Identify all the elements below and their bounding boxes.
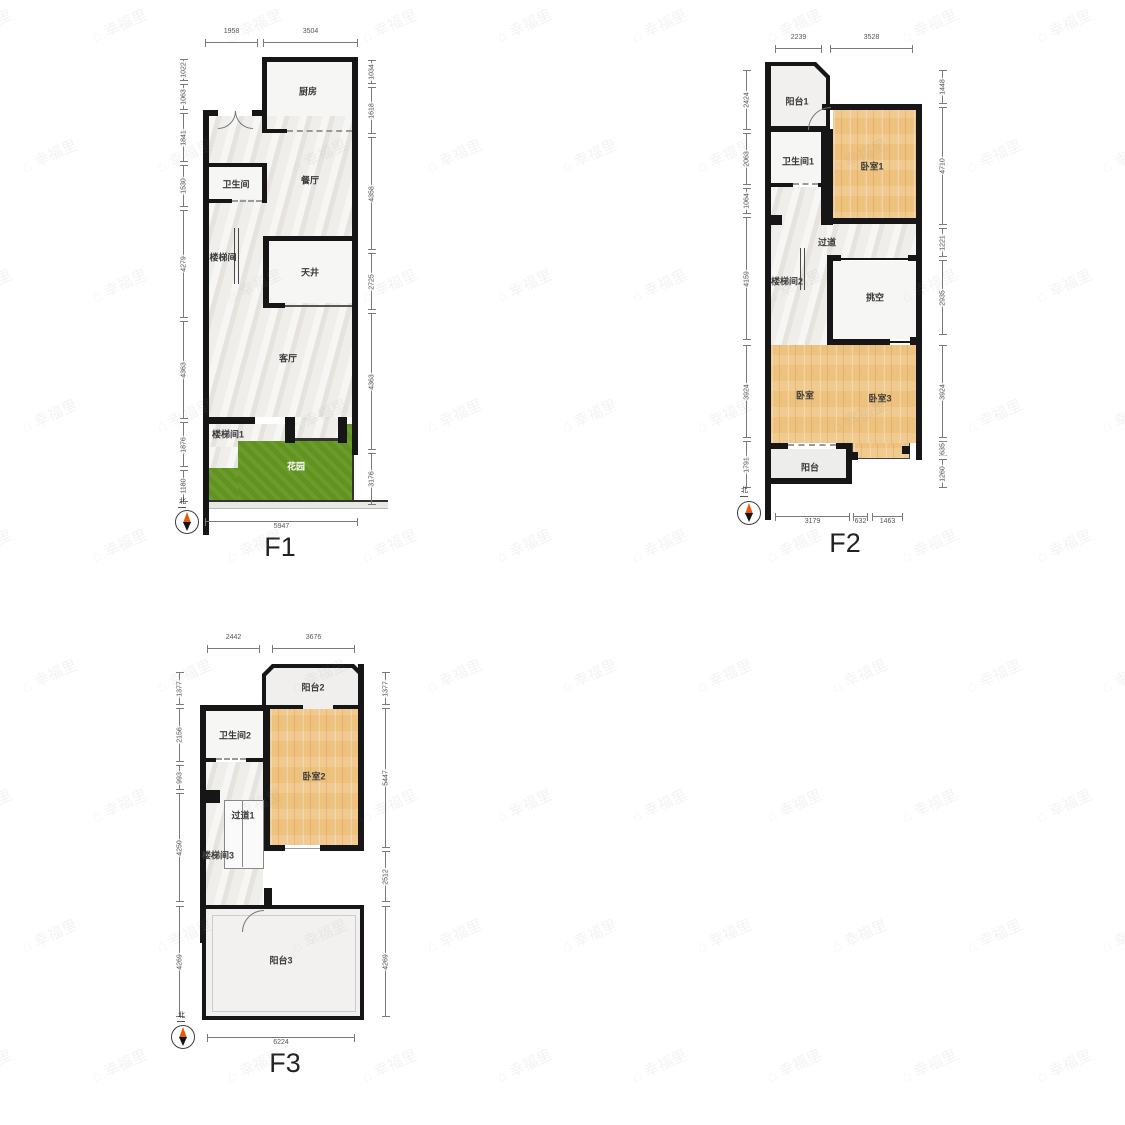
north-tick <box>177 1021 185 1022</box>
void-top-edge <box>833 258 916 260</box>
floor-plan-f3: 阳台2 卫生间2 卧室2 过道1 楼梯间3 阳台3 2442 3676 6224… <box>170 630 400 1095</box>
floorplan-page: { "watermark": "幸福里", "compass": { "nort… <box>0 0 1125 1125</box>
garden-edge-line <box>203 508 388 509</box>
f1-room-label-bath: 卫生间 <box>222 178 249 191</box>
watermark: ⌂ 幸福里 <box>1098 134 1125 177</box>
f2-dim-right-4: 3924 <box>937 345 949 438</box>
watermark: ⌂ 幸福里 <box>88 784 150 827</box>
watermark: ⌂ 幸福里 <box>0 784 15 827</box>
f2-dim-right-2: 1221 <box>937 228 949 257</box>
f2-room-label-void: 挑空 <box>866 291 884 304</box>
f3-balcony3-door-gap <box>206 909 240 913</box>
wall-stub <box>822 215 833 225</box>
wall <box>200 705 270 711</box>
north-label: 北 <box>741 485 748 495</box>
f2-room-label-bath1: 卫生间1 <box>782 155 814 168</box>
f1-dim-left-5: 4363 <box>178 321 190 419</box>
f2-dim-right-6: 1260 <box>937 459 949 488</box>
f1-room-label-dining: 餐厅 <box>301 174 319 187</box>
wall <box>263 236 269 308</box>
wall <box>203 110 209 535</box>
f3-dim-left-4: 4269 <box>174 906 186 1017</box>
f3-dim-left-2: 993 <box>174 765 186 790</box>
f2-dim-right-3: 2935 <box>937 260 949 335</box>
wall <box>822 104 922 110</box>
wall <box>352 57 358 455</box>
f1-room-label-stair1: 楼梯间1 <box>212 428 244 441</box>
watermark: ⌂ 幸福里 <box>963 654 1025 697</box>
wall-stub <box>910 337 916 345</box>
f2-dim-top-1: 3528 <box>830 43 913 55</box>
wall-stub <box>850 452 858 460</box>
north-tick <box>740 496 748 497</box>
watermark: ⌂ 幸福里 <box>0 524 15 567</box>
porch-step-line <box>295 438 338 441</box>
f1-dim-right-4: 4363 <box>366 313 378 450</box>
watermark: ⌂ 幸福里 <box>0 264 15 307</box>
f1-dim-right-1: 1618 <box>366 87 378 134</box>
bath2-opening <box>216 758 246 760</box>
wall <box>320 845 364 851</box>
wall <box>285 417 295 443</box>
watermark: ⌂ 幸福里 <box>1033 1044 1095 1087</box>
watermark: ⌂ 幸福里 <box>628 4 690 47</box>
f1-room-label-living: 客厅 <box>279 352 297 365</box>
f3-room-label-balcony3: 阳台3 <box>269 954 292 967</box>
watermark: ⌂ 幸福里 <box>493 4 555 47</box>
lightwell-edge <box>285 305 352 307</box>
f2-dim-left-2: 1064 <box>741 188 753 214</box>
f2-dim-bottom-0: 3179 <box>775 511 850 523</box>
watermark: ⌂ 幸福里 <box>628 264 690 307</box>
wall <box>252 110 262 116</box>
watermark: ⌂ 幸福里 <box>88 524 150 567</box>
wall <box>358 664 364 851</box>
wall <box>209 199 232 203</box>
watermark: ⌂ 幸福里 <box>628 784 690 827</box>
watermark: ⌂ 幸福里 <box>828 914 890 957</box>
watermark: ⌂ 幸福里 <box>628 1044 690 1087</box>
wall <box>206 758 216 762</box>
watermark: ⌂ 幸福里 <box>1098 394 1125 437</box>
f1-dim-left-3: 1530 <box>178 165 190 207</box>
wall-stub <box>902 446 910 454</box>
wall <box>246 758 263 762</box>
watermark: ⌂ 幸福里 <box>828 654 890 697</box>
bath-opening <box>232 200 262 202</box>
watermark: ⌂ 幸福里 <box>693 654 755 697</box>
wall <box>765 443 788 449</box>
wall <box>338 417 347 443</box>
watermark: ⌂ 幸福里 <box>1033 524 1095 567</box>
watermark: ⌂ 幸福里 <box>898 1044 960 1087</box>
f3-dim-left-1: 2156 <box>174 708 186 762</box>
f1-dim-left-2: 1841 <box>178 113 190 162</box>
f1-room-label-garden: 花园 <box>287 460 305 473</box>
kitchen-sliding-opening <box>287 130 352 132</box>
watermark: ⌂ 幸福里 <box>18 134 80 177</box>
f1-dim-right-0: 1034 <box>366 60 378 84</box>
bedroom2-window <box>285 848 320 849</box>
watermark: ⌂ 幸福里 <box>493 1044 555 1087</box>
watermark: ⌂ 幸福里 <box>963 134 1025 177</box>
watermark: ⌂ 幸福里 <box>0 4 15 47</box>
f3-dim-top-0: 2442 <box>207 643 260 655</box>
watermark: ⌂ 幸福里 <box>1098 654 1125 697</box>
watermark: ⌂ 幸福里 <box>558 394 620 437</box>
wall <box>262 57 267 133</box>
watermark: ⌂ 幸福里 <box>493 524 555 567</box>
f1-room-label-stair: 楼梯间 <box>209 251 236 264</box>
watermark: ⌂ 幸福里 <box>558 654 620 697</box>
wall <box>263 236 352 241</box>
watermark: ⌂ 幸福里 <box>1033 4 1095 47</box>
f2-room-label-corridor: 过道 <box>818 236 836 249</box>
f2-dim-bottom-2: 1463 <box>872 511 903 523</box>
wall <box>827 218 922 224</box>
f2-bedrooms-floor <box>771 345 916 443</box>
f2-room-label-bedroom3: 卧室3 <box>868 392 891 405</box>
compass-icon <box>737 501 761 525</box>
f1-dim-left-4: 4279 <box>178 210 190 318</box>
f1-dim-top-0: 1958 <box>205 37 258 49</box>
wall <box>263 303 285 308</box>
watermark: ⌂ 幸福里 <box>423 394 485 437</box>
f3-room-label-bath2: 卫生间2 <box>219 729 251 742</box>
f1-dim-right-5: 3176 <box>366 453 378 505</box>
garden-fence-right <box>352 455 354 502</box>
wall <box>203 110 218 116</box>
f2-dim-right-0: 1448 <box>937 70 949 104</box>
f1-room-label-kitchen: 厨房 <box>299 85 317 98</box>
watermark: ⌂ 幸福里 <box>0 1044 15 1087</box>
wall <box>827 129 833 222</box>
f3-room-label-stair3: 楼梯间3 <box>202 849 234 862</box>
watermark: ⌂ 幸福里 <box>963 914 1025 957</box>
compass-icon <box>175 510 199 534</box>
wall <box>263 709 270 845</box>
f2-dim-left-4: 3924 <box>741 345 753 438</box>
f2-title: F2 <box>829 528 861 559</box>
f2-room-label-bedroom1: 卧室1 <box>860 160 883 173</box>
f1-stair1-floor-step <box>209 447 238 468</box>
watermark: ⌂ 幸福里 <box>423 134 485 177</box>
f3-dim-top-1: 3676 <box>272 643 355 655</box>
watermark: ⌂ 幸福里 <box>88 264 150 307</box>
watermark: ⌂ 幸福里 <box>423 654 485 697</box>
f3-room-label-balcony2: 阳台2 <box>301 681 324 694</box>
wall <box>827 339 890 345</box>
f1-dim-left-1: 1063 <box>178 84 190 110</box>
watermark-layer: ⌂ 幸福里⌂ 幸福里⌂ 幸福里⌂ 幸福里⌂ 幸福里⌂ 幸福里⌂ 幸福里⌂ 幸福里… <box>0 0 1125 1125</box>
wall <box>818 183 827 187</box>
north-tick <box>178 507 186 508</box>
floor-plan-f1: 厨房 卫生间 餐厅 楼梯间 天井 客厅 楼梯间1 花园 1958 3504 59… <box>170 30 390 570</box>
wall <box>765 183 793 187</box>
f3-dim-left-3: 4250 <box>174 793 186 902</box>
f2-dim-left-1: 2063 <box>741 133 753 185</box>
f2-room-label-bedroom: 卧室 <box>796 389 814 402</box>
f3-dim-bottom-0: 6224 <box>207 1032 355 1044</box>
f3-dim-right-0: 1377 <box>380 672 392 705</box>
f1-living-porch-floor <box>295 417 338 438</box>
watermark: ⌂ 幸福里 <box>1033 264 1095 307</box>
watermark: ⌂ 幸福里 <box>493 264 555 307</box>
watermark: ⌂ 幸福里 <box>763 1044 825 1087</box>
f2-corridor-strip-floor <box>827 224 916 258</box>
wall <box>263 845 285 851</box>
f2-room-label-stair2: 楼梯间2 <box>771 275 803 288</box>
watermark: ⌂ 幸福里 <box>88 1044 150 1087</box>
f3-title: F3 <box>269 1048 301 1079</box>
f1-dim-left-0: 1022 <box>178 59 190 81</box>
f1-dim-bottom-0: 5947 <box>205 516 358 528</box>
f1-dim-left-6: 1876 <box>178 422 190 467</box>
watermark: ⌂ 幸福里 <box>763 784 825 827</box>
f1-room-label-lightwell: 天井 <box>301 266 319 279</box>
f1-dim-right-3: 2725 <box>366 253 378 310</box>
f3-dim-right-2: 2512 <box>380 851 392 902</box>
f3-dim-right-3: 4269 <box>380 906 392 1017</box>
f1-title: F1 <box>264 532 296 563</box>
f1-dim-right-2: 4358 <box>366 137 378 250</box>
f1-dim-top-1: 3504 <box>263 37 358 49</box>
f3-room-label-bedroom2: 卧室2 <box>302 770 325 783</box>
f2-room-label-balcony1: 阳台1 <box>785 95 808 108</box>
bath1-opening <box>793 183 818 185</box>
floor-plan-f2: 阳台1 卫生间1 卧室1 过道 楼梯间2 挑空 卧室 卧室3 阳台 2239 3… <box>735 30 955 570</box>
wall <box>262 163 267 203</box>
watermark: ⌂ 幸福里 <box>693 914 755 957</box>
f3-dim-right-1: 5447 <box>380 708 392 848</box>
watermark: ⌂ 幸福里 <box>963 394 1025 437</box>
wall-stub <box>765 215 782 225</box>
f2-dim-left-5: 1791 <box>741 441 753 488</box>
watermark: ⌂ 幸福里 <box>493 784 555 827</box>
north-label: 北 <box>179 496 186 506</box>
wall <box>916 104 922 460</box>
wall <box>209 163 267 167</box>
wall-stub <box>908 255 916 261</box>
f3-room-label-corridor1: 过道1 <box>231 809 254 822</box>
f2-room-label-balcony: 阳台 <box>801 461 819 474</box>
wall <box>846 443 852 484</box>
f2-dim-right-1: 4710 <box>937 107 949 225</box>
watermark: ⌂ 幸福里 <box>18 914 80 957</box>
wall-stub <box>833 255 841 261</box>
wall <box>262 57 358 62</box>
f2-dim-right-5: 635 <box>937 441 949 456</box>
north-label: 北 <box>178 1010 185 1020</box>
f2-dim-top-0: 2239 <box>775 43 822 55</box>
f1-garden-floor-left <box>209 468 238 500</box>
watermark: ⌂ 幸福里 <box>18 654 80 697</box>
wall <box>262 129 287 133</box>
f2-dim-left-3: 4159 <box>741 217 753 340</box>
watermark: ⌂ 幸福里 <box>1033 784 1095 827</box>
wall <box>765 478 852 484</box>
watermark: ⌂ 幸福里 <box>1098 914 1125 957</box>
compass-south-needle <box>745 513 753 522</box>
compass-south-needle <box>179 1037 187 1046</box>
watermark: ⌂ 幸福里 <box>558 134 620 177</box>
watermark: ⌂ 幸福里 <box>18 394 80 437</box>
compass-icon <box>171 1025 195 1049</box>
compass-south-needle <box>183 522 191 531</box>
watermark: ⌂ 幸福里 <box>558 914 620 957</box>
wall <box>203 417 255 424</box>
f2-dim-bottom-1: 632 <box>853 511 868 523</box>
watermark: ⌂ 幸福里 <box>628 524 690 567</box>
f2-dim-left-0: 2424 <box>741 70 753 130</box>
f3-dim-left-0: 1377 <box>174 672 186 705</box>
watermark: ⌂ 幸福里 <box>898 784 960 827</box>
f2-corridor-floor <box>771 187 827 347</box>
balcony-opening <box>788 444 836 446</box>
watermark: ⌂ 幸福里 <box>88 4 150 47</box>
wall <box>827 255 833 345</box>
wall-stub <box>206 790 220 803</box>
watermark: ⌂ 幸福里 <box>423 914 485 957</box>
